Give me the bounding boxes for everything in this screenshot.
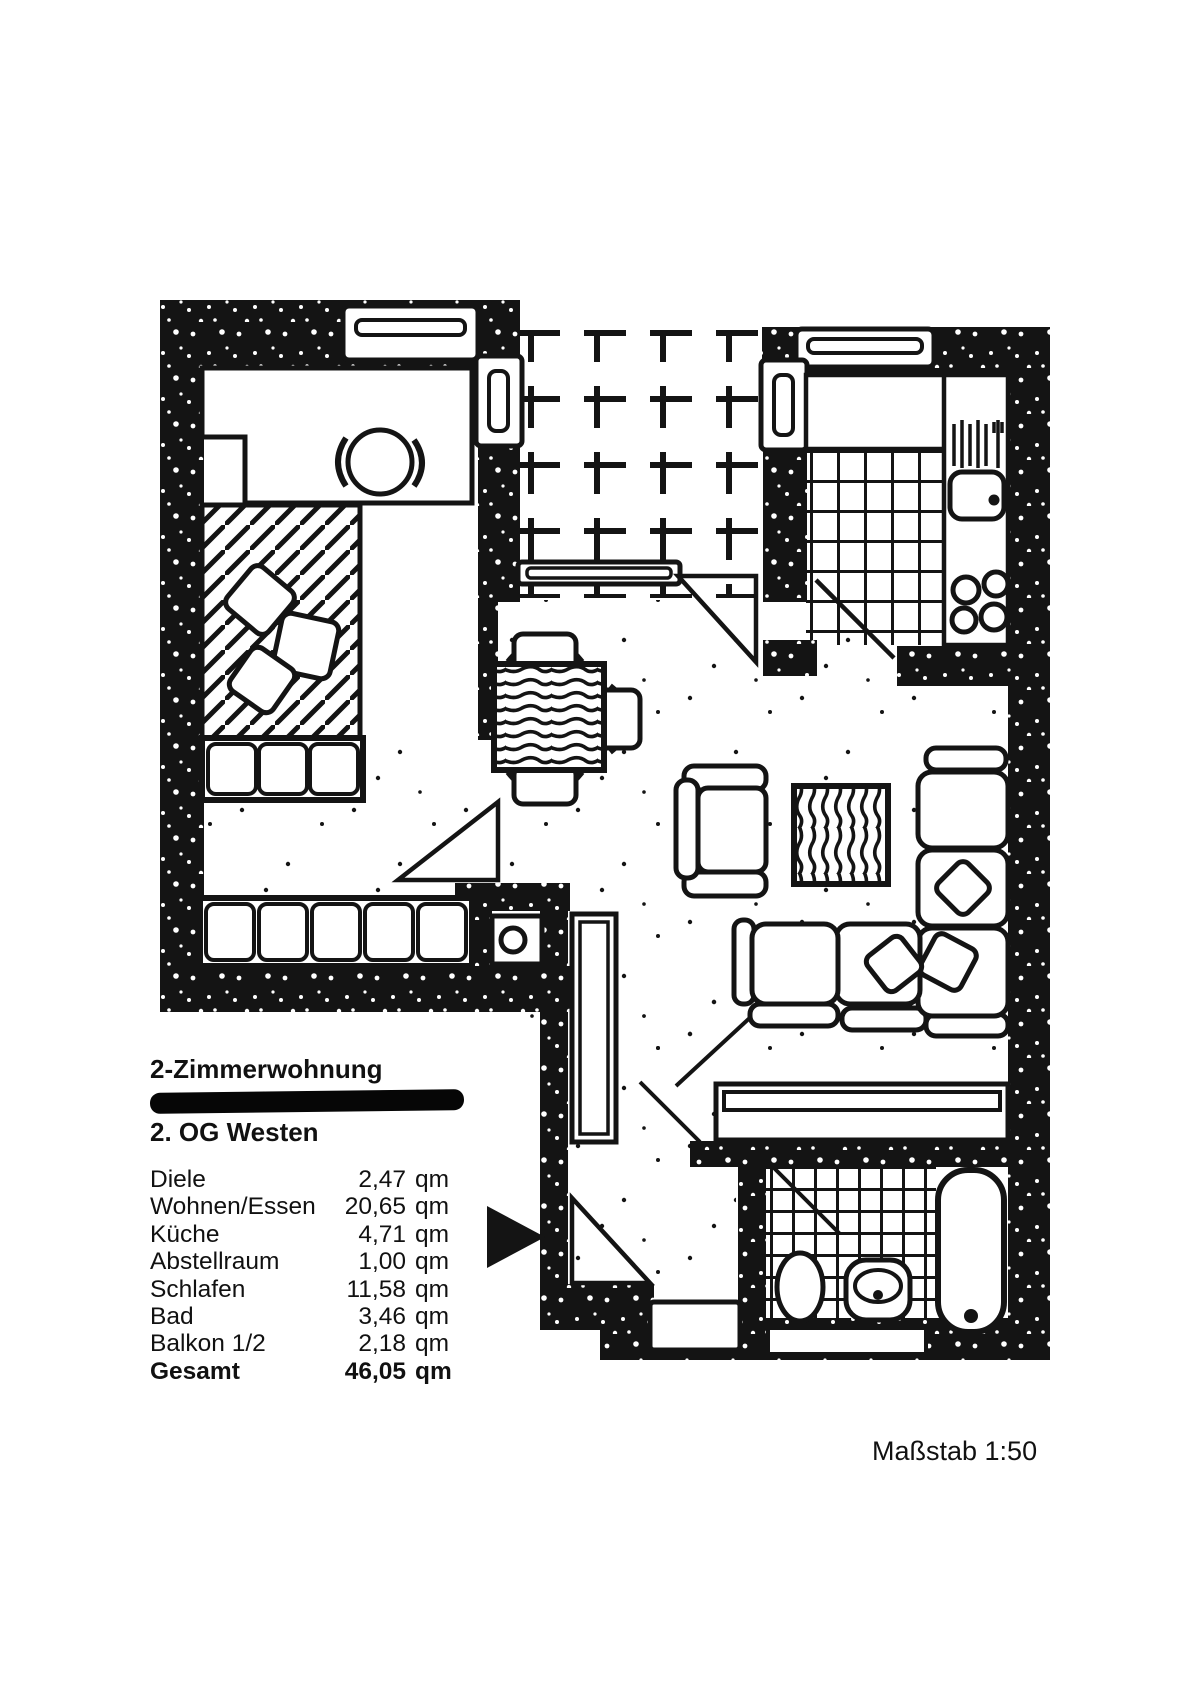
plan-title: 2-Zimmerwohnung xyxy=(150,1054,490,1084)
room-area: 20,65 xyxy=(330,1193,406,1220)
washbasin xyxy=(846,1260,910,1320)
floorplan-page: 2-Zimmerwohnung 2. OG Westen Diele 2,47 … xyxy=(0,0,1203,1700)
area-unit: qm xyxy=(406,1248,460,1275)
room-row: Wohnen/Essen 20,65 qm xyxy=(150,1193,460,1220)
toilet xyxy=(777,1253,823,1321)
dining-table xyxy=(494,664,604,770)
room-row: Küche 4,71 qm xyxy=(150,1221,460,1248)
room-area: 11,58 xyxy=(330,1276,406,1303)
bathtub xyxy=(938,1170,1004,1332)
kitchen-sink xyxy=(950,472,1004,519)
redacted-address-bar xyxy=(150,1089,464,1114)
room-area: 2,18 xyxy=(330,1330,406,1357)
hall-closet xyxy=(572,914,616,1142)
room-area: 2,47 xyxy=(330,1166,406,1193)
floor-orientation: 2. OG Westen xyxy=(150,1117,490,1147)
balcony-right-frame xyxy=(761,360,807,450)
room-row-total: Gesamt 46,05 qm xyxy=(150,1358,460,1385)
room-label: Balkon 1/2 xyxy=(150,1330,330,1357)
scale-label: Maßstab 1:50 xyxy=(872,1436,1037,1467)
kitchen-window xyxy=(796,329,934,367)
coffee-table xyxy=(794,786,888,884)
area-unit: qm xyxy=(406,1221,460,1248)
room-row: Balkon 1/2 2,18 qm xyxy=(150,1330,460,1357)
room-label: Diele xyxy=(150,1166,330,1193)
room-label: Küche xyxy=(150,1221,330,1248)
room-area: 46,05 xyxy=(330,1358,406,1385)
bath-mat xyxy=(768,1328,926,1354)
plan-info-block: 2-Zimmerwohnung 2. OG Westen xyxy=(150,1054,490,1147)
lowboard xyxy=(716,1084,1008,1140)
desk xyxy=(202,368,472,503)
room-label: Bad xyxy=(150,1303,330,1330)
area-unit: qm xyxy=(406,1166,460,1193)
area-unit: qm xyxy=(406,1193,460,1220)
balcony-tile-floor xyxy=(520,330,762,598)
room-row: Abstellraum 1,00 qm xyxy=(150,1248,460,1275)
room-area: 1,00 xyxy=(330,1248,406,1275)
room-area: 4,71 xyxy=(330,1221,406,1248)
storage-appliance xyxy=(492,916,542,964)
room-row: Bad 3,46 qm xyxy=(150,1303,460,1330)
area-table: Diele 2,47 qm Wohnen/Essen 20,65 qm Küch… xyxy=(150,1166,460,1385)
area-unit: qm xyxy=(406,1276,460,1303)
room-label: Schlafen xyxy=(150,1276,330,1303)
area-unit: qm xyxy=(406,1303,460,1330)
room-label: Wohnen/Essen xyxy=(150,1193,330,1220)
bedroom-window xyxy=(343,306,478,360)
balcony-left-frame xyxy=(476,356,522,446)
room-row: Schlafen 11,58 qm xyxy=(150,1276,460,1303)
bedside-cabinet xyxy=(202,738,363,800)
balcony-sliding-door xyxy=(518,562,680,584)
area-unit: qm xyxy=(406,1330,460,1357)
entrance-arrow xyxy=(487,1206,545,1268)
room-area: 3,46 xyxy=(330,1303,406,1330)
doormat xyxy=(650,1302,740,1350)
armchair xyxy=(676,766,766,896)
room-label: Abstellraum xyxy=(150,1248,330,1275)
room-row: Diele 2,47 qm xyxy=(150,1166,460,1193)
area-unit: qm xyxy=(406,1358,460,1385)
wardrobe xyxy=(200,898,472,966)
room-label: Gesamt xyxy=(150,1358,330,1385)
